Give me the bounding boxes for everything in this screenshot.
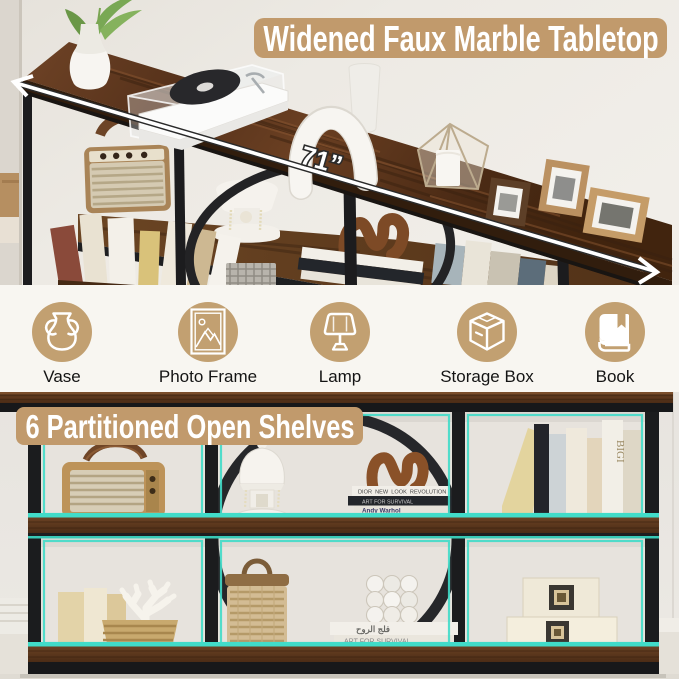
svg-text:ART FOR SURVIVAL: ART FOR SURVIVAL	[362, 499, 413, 505]
svg-text:DIOR NEW LOOK REVOLUTION: DIOR NEW LOOK REVOLUTION	[358, 490, 446, 496]
svg-text:فلج الروح: فلج الروح	[356, 624, 390, 635]
svg-text:BIGI: BIGI	[614, 440, 626, 463]
